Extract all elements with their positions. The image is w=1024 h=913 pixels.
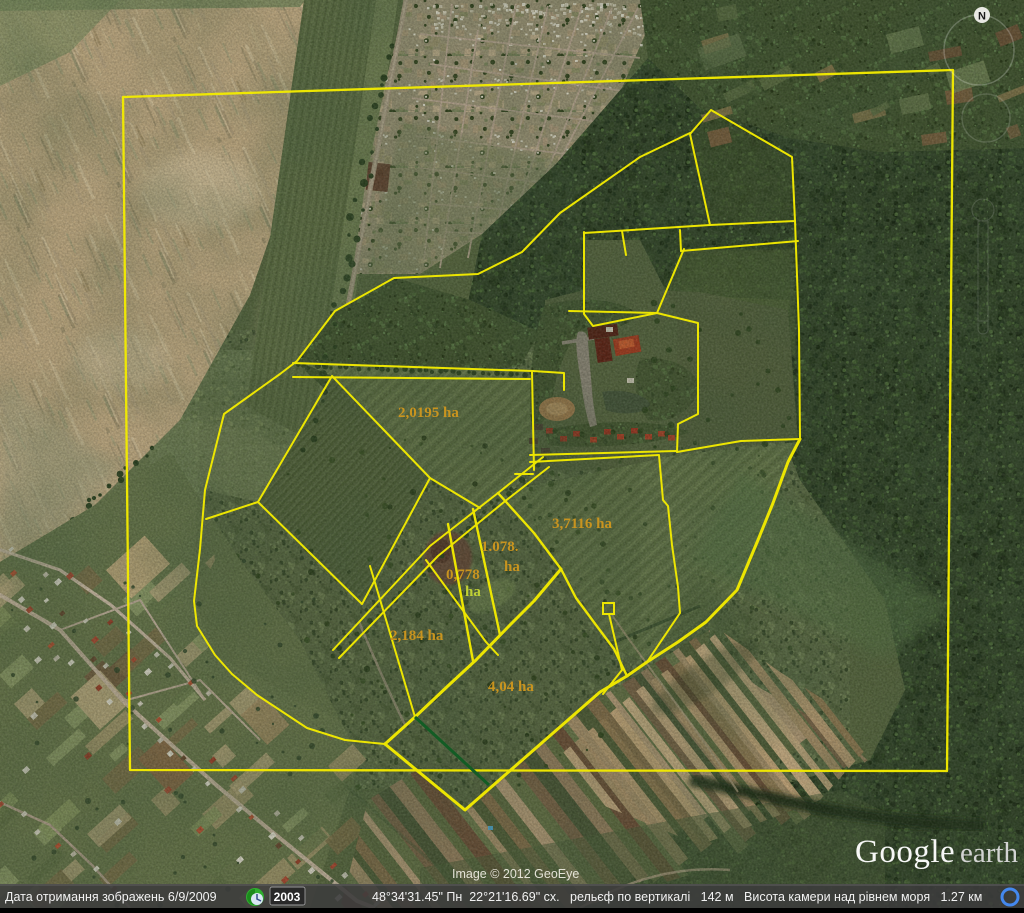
svg-text:Висота камери над рівнем моря: Висота камери над рівнем моря 1.27 км [744, 890, 982, 904]
svg-text:ha: ha [465, 584, 481, 600]
svg-text:48°34'31.45" Пн 22°21'16.69": 48°34'31.45" Пн 22°21'16.69" сх. рельєф … [372, 890, 734, 904]
svg-text:4,04 ha: 4,04 ha [488, 679, 534, 695]
svg-text:ha: ha [504, 559, 520, 575]
svg-text:2003: 2003 [274, 890, 301, 904]
svg-text:0,778: 0,778 [446, 567, 480, 583]
svg-text:earth: earth [960, 837, 1018, 869]
svg-text:1.078.: 1.078. [481, 539, 519, 555]
svg-text:Google: Google [855, 834, 955, 870]
svg-text:Image © 2012 GeoEye: Image © 2012 GeoEye [452, 867, 579, 881]
svg-text:N: N [978, 11, 986, 23]
svg-text:2,184 ha: 2,184 ha [390, 628, 444, 644]
svg-text:3,7116 ha: 3,7116 ha [552, 516, 613, 532]
svg-text:Дата отримання зображень 6/9/2: Дата отримання зображень 6/9/2009 [5, 890, 217, 904]
svg-text:2,0195 ha: 2,0195 ha [398, 405, 459, 421]
